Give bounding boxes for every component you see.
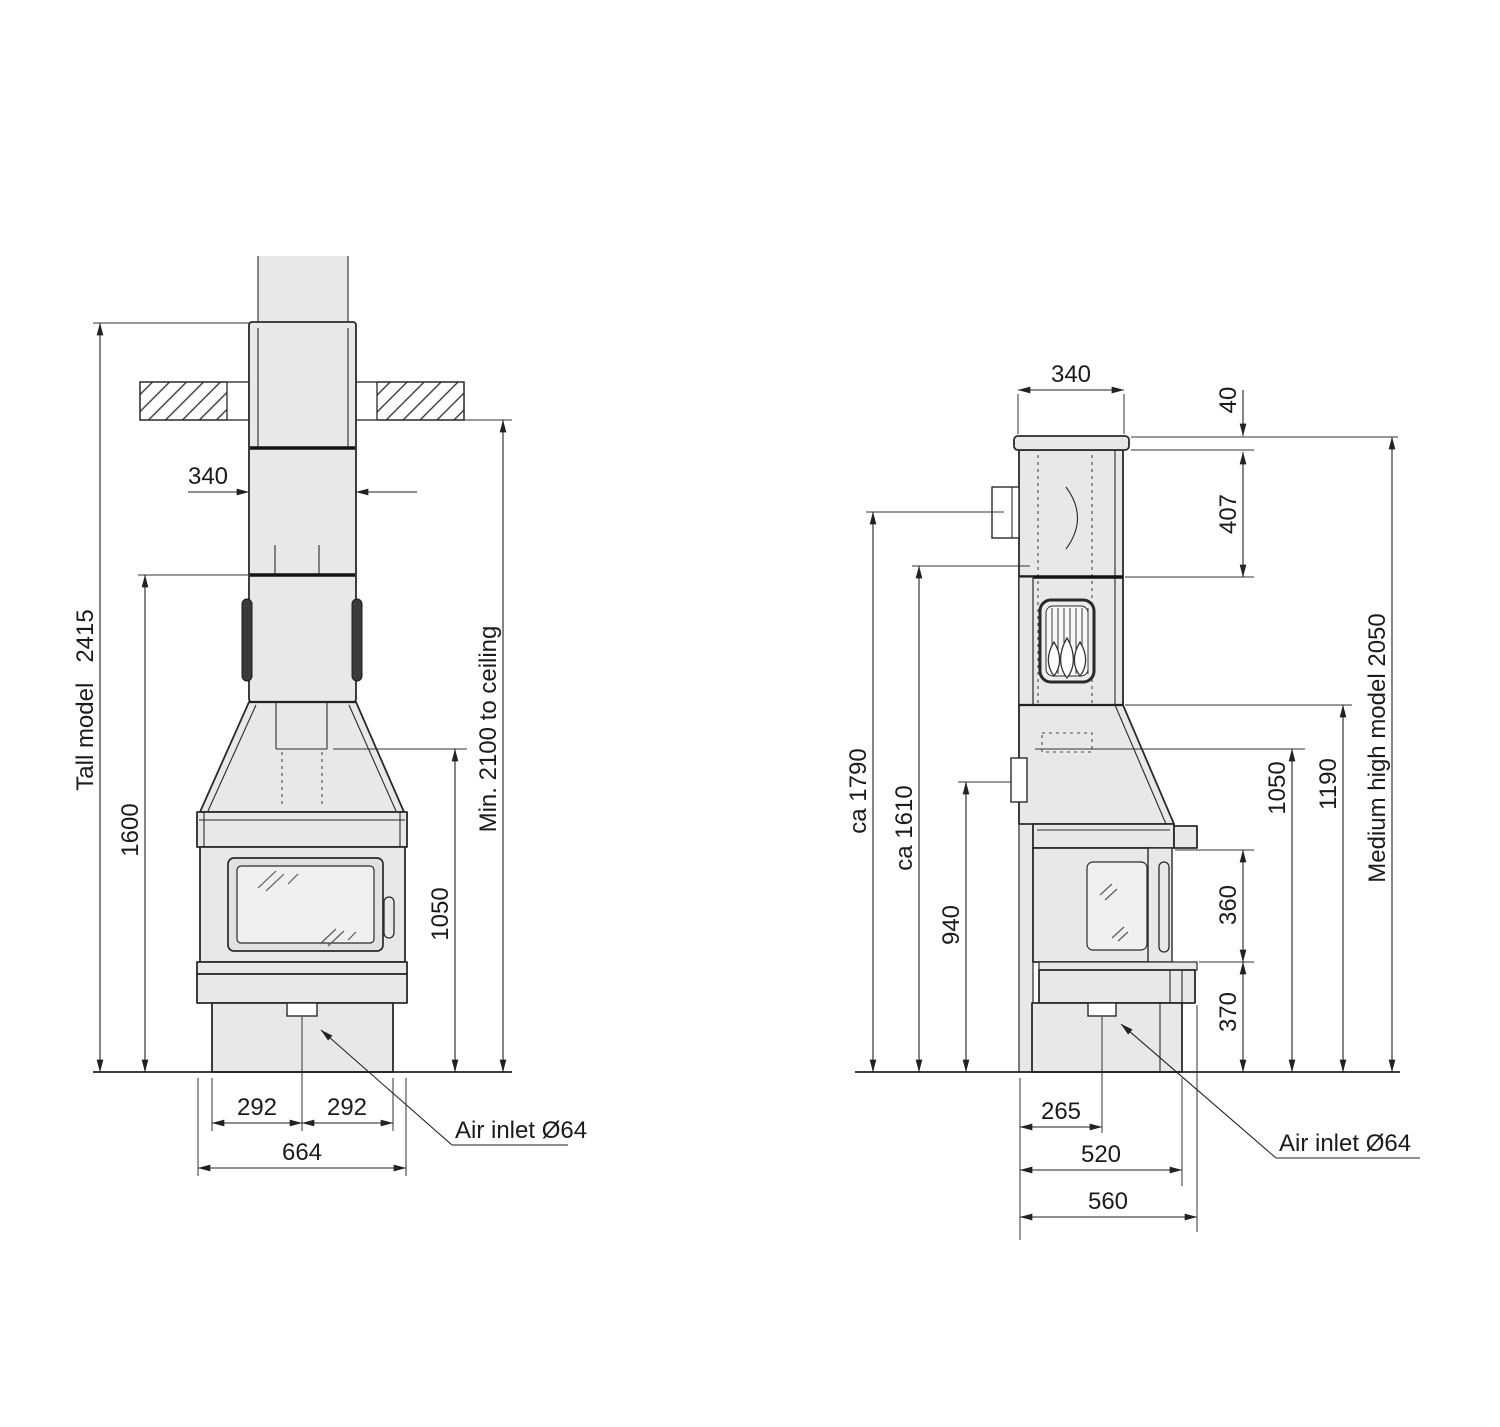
side-air-inlet-offset-label: 265 [1041, 1098, 1081, 1125]
front-base-left-label: 292 [237, 1094, 277, 1121]
hood-rim [197, 812, 407, 847]
side-rear-flue-height-label: ca 1610 [891, 785, 918, 870]
side-vent-bar-left [242, 599, 252, 681]
front-ceiling-clearance-label: Min. 2100 to ceiling [475, 626, 502, 833]
side-top-plate-label: 40 [1215, 387, 1242, 414]
side-vent-height-label: 940 [938, 905, 965, 945]
front-view: Tall model 2415 1600 340 Min. 2100 to ce… [72, 256, 587, 1176]
front-mid-height-label: 1600 [117, 803, 144, 856]
side-hood-underside-label: 1050 [1264, 761, 1291, 814]
base-strip [1039, 962, 1197, 970]
side-upper-section-label: 407 [1215, 494, 1242, 534]
base-strip [197, 962, 407, 974]
door-handle [384, 897, 394, 938]
front-firebox [200, 847, 405, 962]
hood-rim [1033, 824, 1174, 848]
side-base [1032, 962, 1197, 1072]
front-air-inlet-label: Air inlet Ø64 [455, 1117, 587, 1144]
front-hood [197, 702, 407, 847]
front-flue-width-label: 340 [188, 463, 228, 490]
side-body-depth-label: 520 [1081, 1141, 1121, 1168]
side-firebox [1033, 848, 1172, 962]
air-inlet-leader [1121, 1024, 1276, 1158]
side-view: 340 40 407 ca 1790 ca 1610 940 [845, 361, 1420, 1240]
side-rear-outlet-height-label: ca 1790 [845, 748, 872, 833]
technical-drawing-page: Tall model 2415 1600 340 Min. 2100 to ce… [0, 0, 1500, 1427]
door-glass [237, 866, 374, 943]
side-model-height-label: Medium high model 2050 [1364, 613, 1391, 883]
hood-body [200, 702, 404, 812]
hood-rim-cap [1174, 826, 1197, 848]
front-chimney [242, 256, 362, 702]
side-air-inlet-label: Air inlet Ø64 [1279, 1130, 1411, 1157]
door-glass [1087, 862, 1147, 950]
base-band [197, 974, 407, 1003]
air-inlet-notch [1088, 1003, 1116, 1016]
front-opening-height-label: 1050 [427, 887, 454, 940]
side-door-opening-label: 360 [1215, 885, 1242, 925]
side-hood [1011, 705, 1197, 848]
ceiling-hatch-right [377, 382, 464, 420]
base-band [1039, 970, 1195, 1003]
side-shoulder-height-label: 1190 [1315, 758, 1342, 810]
hood-body [1019, 705, 1174, 824]
front-model-height-label: Tall model 2415 [72, 609, 99, 790]
top-pipe [258, 256, 348, 326]
wall-bracket [1011, 758, 1027, 802]
top-plate [1014, 436, 1129, 450]
side-flame-grille [1040, 600, 1094, 682]
air-inlet-notch [287, 1003, 317, 1016]
door-handle [1159, 862, 1169, 952]
side-flue-depth-label: 340 [1051, 361, 1091, 388]
front-base-right-label: 292 [327, 1094, 367, 1121]
side-total-depth-label: 560 [1088, 1188, 1128, 1215]
side-vent-bar-right [352, 599, 362, 681]
ceiling-hatch-left [140, 382, 227, 420]
fireplace-dimension-drawing: Tall model 2415 1600 340 Min. 2100 to ce… [0, 0, 1500, 1427]
side-plinth-label: 370 [1215, 992, 1242, 1032]
chimney-casing [249, 322, 356, 702]
front-total-width-label: 664 [282, 1139, 322, 1166]
